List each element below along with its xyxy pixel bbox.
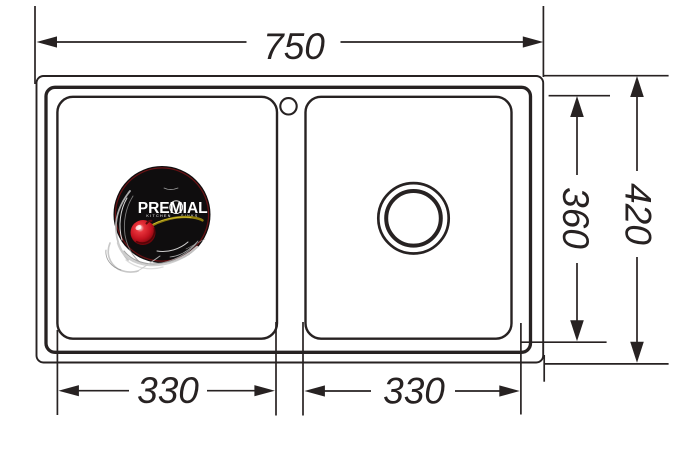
svg-text:360: 360 <box>555 187 596 249</box>
svg-text:750: 750 <box>263 26 325 67</box>
svg-text:420: 420 <box>618 183 659 245</box>
svg-text:330: 330 <box>137 370 199 411</box>
svg-text:330: 330 <box>383 371 445 412</box>
